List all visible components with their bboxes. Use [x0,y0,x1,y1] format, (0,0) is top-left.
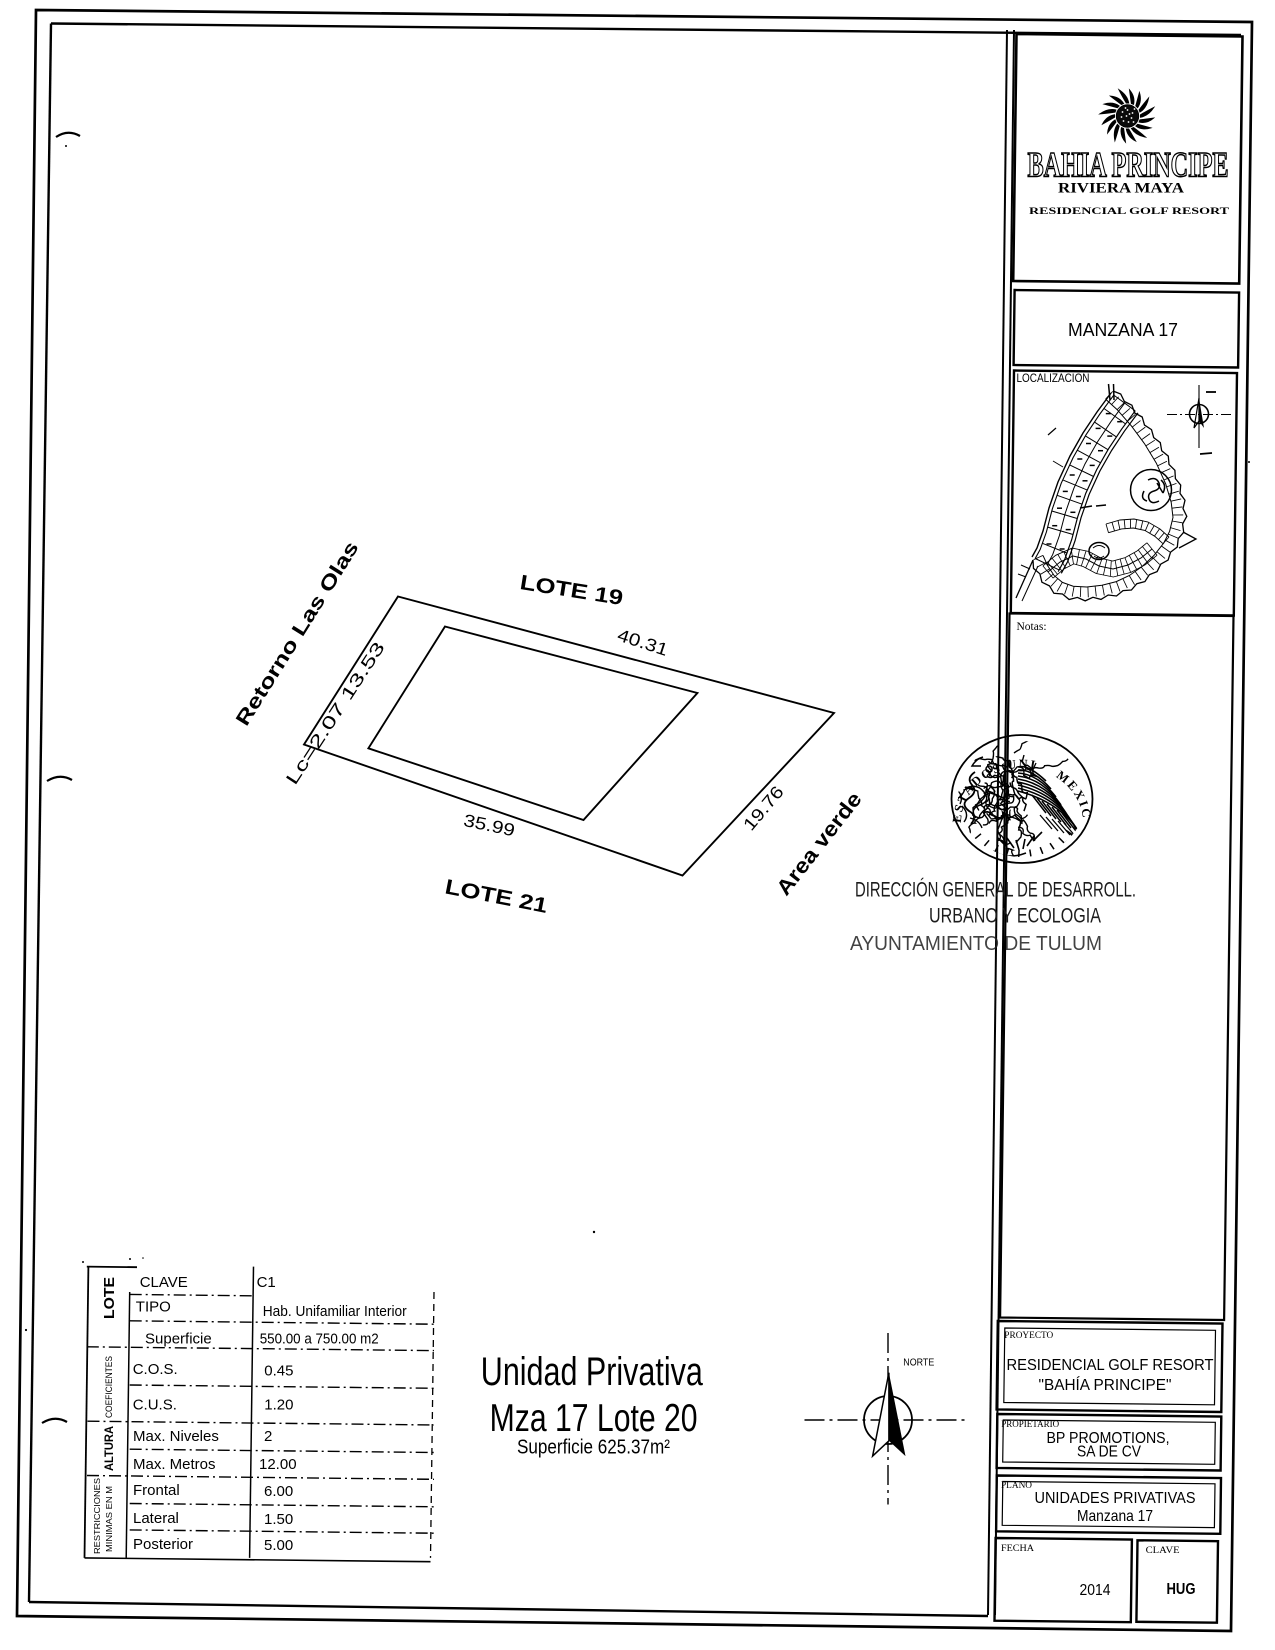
svg-text:"BAHÍA PRINCIPE": "BAHÍA PRINCIPE" [1039,1375,1172,1394]
svg-text:Hab. Unifamiliar Interior: Hab. Unifamiliar Interior [263,1303,407,1320]
svg-text:Manzana 17: Manzana 17 [1077,1508,1153,1525]
svg-text:550.00 a 750.00 m2: 550.00 a 750.00 m2 [260,1331,379,1348]
svg-text:UNIDADES PRIVATIVAS: UNIDADES PRIVATIVAS [1035,1490,1196,1507]
svg-text:Lc=2.07 13.53: Lc=2.07 13.53 [282,638,389,788]
svg-text:CLAVE: CLAVE [1146,1546,1180,1556]
svg-text:5.00: 5.00 [264,1537,293,1554]
svg-text:LOCALIZACION: LOCALIZACION [1017,371,1090,385]
svg-text:ALTURA: ALTURA [102,1426,116,1471]
svg-text:DIRECCIÓN GENERAL DE DESARROLL: DIRECCIÓN GENERAL DE DESARROLL. [855,879,1136,902]
svg-text:RESTRICCIONES: RESTRICCIONES [92,1478,102,1554]
svg-text:C.O.S.: C.O.S. [133,1361,178,1378]
svg-text:Mza 17 Lote 20: Mza 17 Lote 20 [490,1397,698,1440]
svg-text:Posterior: Posterior [133,1536,193,1553]
svg-text:PROPIETARIO: PROPIETARIO [1001,1420,1059,1430]
svg-text:RESIDENCIAL GOLF RESORT: RESIDENCIAL GOLF RESORT [1029,206,1229,216]
svg-text:1.50: 1.50 [264,1511,293,1528]
svg-text:URBANO Y ECOLOGIA: URBANO Y ECOLOGIA [929,905,1101,928]
svg-text:40.31: 40.31 [615,625,671,660]
svg-text:Notas:: Notas: [1017,621,1047,633]
svg-text:12.00: 12.00 [259,1456,297,1473]
svg-text:ESTADOS UNI MEXICANOS: ESTADOS UNI MEXICANOS [0,0,1094,823]
svg-text:TIPO: TIPO [136,1299,171,1316]
svg-text:C1: C1 [257,1274,276,1291]
svg-text:FECHA: FECHA [1001,1544,1034,1554]
svg-text:2: 2 [264,1428,272,1445]
svg-text:Max. Metros: Max. Metros [133,1456,216,1473]
svg-text:0.45: 0.45 [264,1363,293,1380]
svg-text:HUG: HUG [1167,1581,1196,1598]
svg-text:Lateral: Lateral [133,1510,179,1527]
svg-text:1.20: 1.20 [264,1397,293,1414]
svg-text:Unidad Privativa: Unidad Privativa [481,1350,704,1394]
svg-text:Superficie 625.37m²: Superficie 625.37m² [517,1436,670,1459]
svg-text:CLAVE: CLAVE [140,1274,188,1291]
svg-text:2014: 2014 [1080,1582,1111,1599]
svg-text:C.U.S.: C.U.S. [133,1397,177,1414]
svg-text:Frontal: Frontal [133,1482,180,1499]
svg-text:BAHIA PRINCIPE: BAHIA PRINCIPE [1028,145,1229,185]
svg-text:6.00: 6.00 [264,1483,293,1500]
svg-text:LOTE: LOTE [101,1277,118,1319]
svg-text:AYUNTAMIENTO DE TULUM: AYUNTAMIENTO DE TULUM [850,933,1102,955]
svg-text:NORTE: NORTE [903,1357,934,1369]
svg-text:LOTE 21: LOTE 21 [443,875,550,917]
svg-text:Max. Niveles: Max. Niveles [133,1428,219,1445]
svg-text:PLANO: PLANO [1001,1481,1032,1491]
svg-text:LOTE 19: LOTE 19 [518,571,624,610]
svg-text:Superficie: Superficie [145,1331,212,1348]
svg-text:MANZANA 17: MANZANA 17 [1068,320,1178,340]
svg-text:RESIDENCIAL GOLF RESORT: RESIDENCIAL GOLF RESORT [1007,1357,1214,1374]
svg-text:PROYECTO: PROYECTO [1004,1331,1053,1341]
svg-text:COEFICIENTES: COEFICIENTES [104,1356,115,1418]
svg-text:RIVIERA MAYA: RIVIERA MAYA [1058,181,1185,197]
svg-text:Area verde: Area verde [772,788,866,900]
svg-text:MINIMAS EN M: MINIMAS EN M [104,1486,114,1552]
svg-text:SA DE CV: SA DE CV [1077,1444,1141,1461]
